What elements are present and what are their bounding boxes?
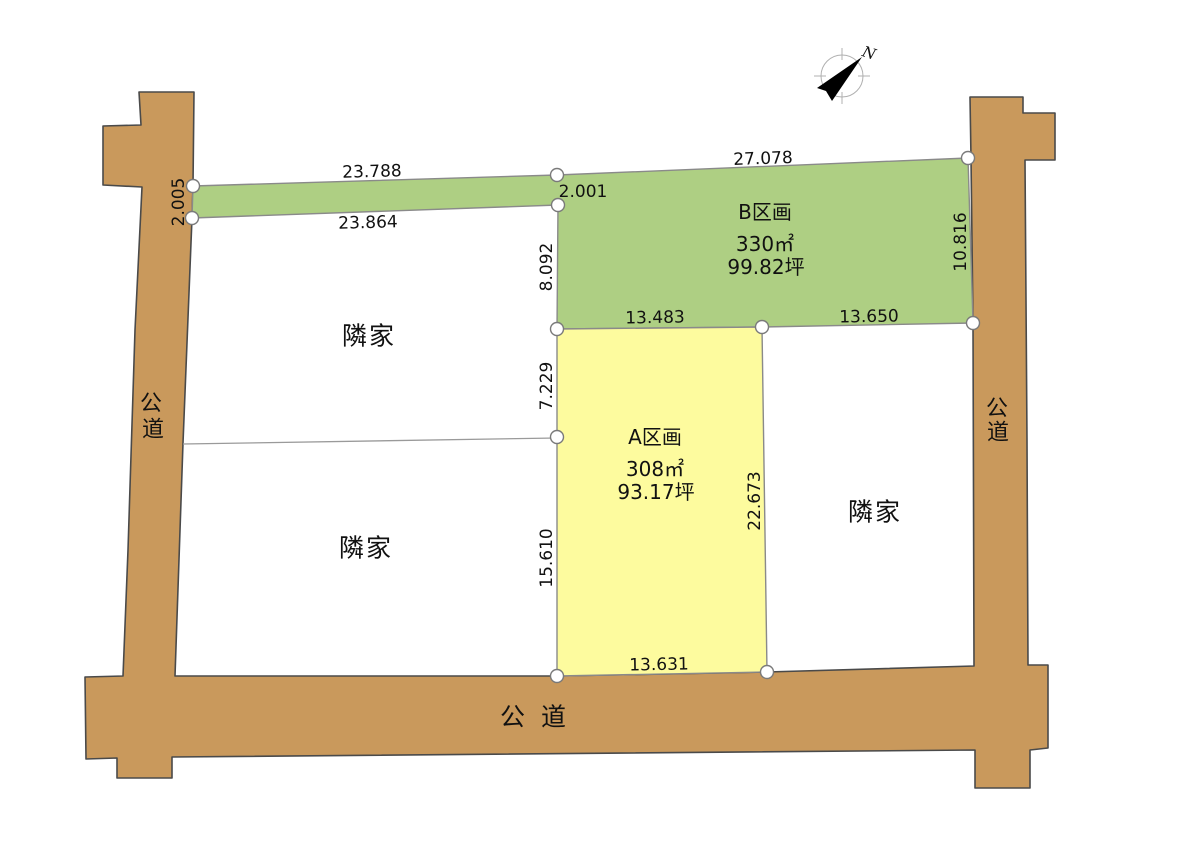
survey-point <box>756 321 769 334</box>
neighbor-lower-left-label: 隣家 <box>339 534 393 563</box>
plot-b-area-tsubo: 99.82坪 <box>727 255 804 279</box>
road-right-label-char1: 公 <box>986 397 1008 422</box>
plot-a-area-tsubo: 93.17坪 <box>617 480 694 504</box>
dim-b-top: 27.078 <box>733 148 793 170</box>
plot-b-area-m2: 330㎡ <box>736 232 794 256</box>
north-label: N <box>859 42 879 64</box>
road-bottom-label: 公 道 <box>500 703 570 732</box>
plot-a-area-m2: 308㎡ <box>626 457 684 481</box>
neighbor-right-label: 隣家 <box>848 498 902 527</box>
neighbor-upper-left-label: 隣家 <box>342 322 396 351</box>
survey-point <box>551 670 564 683</box>
road-left-label-char1: 公 <box>140 392 162 417</box>
dim-strip-bottom: 23.864 <box>338 212 398 234</box>
subdivision-map: 23.788 23.864 2.005 2.001 27.078 8.092 1… <box>0 0 1190 841</box>
plot-map-canvas: 23.788 23.864 2.005 2.001 27.078 8.092 1… <box>0 0 1190 841</box>
dim-strip-road-width: 2.005 <box>169 178 189 227</box>
survey-point <box>761 666 774 679</box>
road-right-label-char2: 道 <box>987 421 1009 446</box>
dim-a-left-upper: 7.229 <box>537 362 557 411</box>
neighbor-boundary-line <box>183 438 557 444</box>
dim-b-left: 8.092 <box>537 243 557 292</box>
road-left-label-char2: 道 <box>142 418 164 443</box>
survey-point <box>962 152 975 165</box>
survey-point <box>551 169 564 182</box>
plot-b-name: B区画 <box>738 200 792 224</box>
survey-point <box>551 323 564 336</box>
dim-b-right: 10.816 <box>951 212 971 271</box>
dim-a-left-lower: 15.610 <box>537 528 557 587</box>
dim-b-bottom-left: 13.483 <box>625 307 685 328</box>
dim-a-bottom: 13.631 <box>629 654 689 675</box>
dim-a-right: 22.673 <box>745 471 765 530</box>
plot-a-name: A区画 <box>628 425 682 449</box>
dim-strip-top: 23.788 <box>342 161 402 183</box>
dim-b-bottom-right: 13.650 <box>839 306 899 327</box>
north-needle-icon <box>817 57 862 101</box>
survey-point <box>967 317 980 330</box>
north-compass: N <box>814 42 879 104</box>
survey-point <box>551 431 564 444</box>
dim-strip-inner-width: 2.001 <box>559 182 608 202</box>
